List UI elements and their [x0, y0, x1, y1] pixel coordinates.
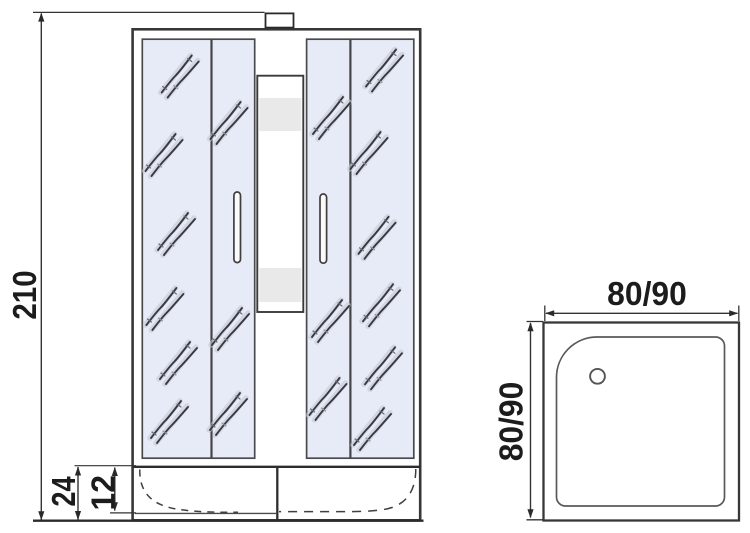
svg-text:210: 210 [5, 270, 43, 319]
svg-text:24: 24 [45, 476, 82, 506]
svg-text:12: 12 [84, 475, 122, 510]
svg-text:80/90: 80/90 [492, 382, 530, 462]
svg-text:80/90: 80/90 [607, 274, 687, 312]
